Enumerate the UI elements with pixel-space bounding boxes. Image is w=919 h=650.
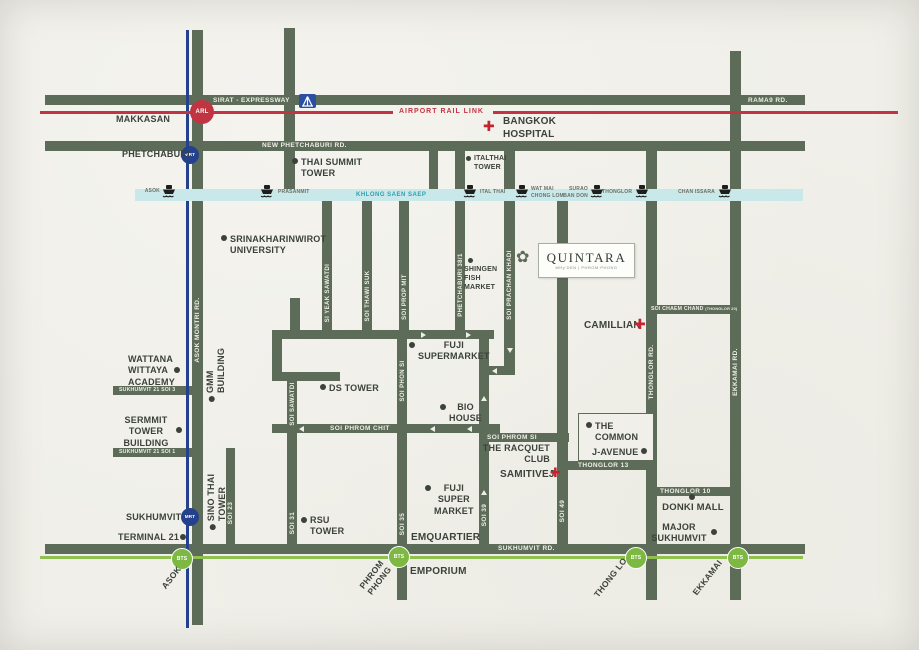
- poi-dot: [221, 235, 227, 241]
- road-sirat-expressway: [45, 95, 805, 105]
- mrt-line: [186, 30, 189, 628]
- road-label-phon-si: SOI PHON SI: [400, 360, 406, 401]
- poi-dot: [468, 258, 473, 263]
- poi-dot: [711, 529, 717, 535]
- road-label-sirat: SIRAT - EXPRESSWAY: [213, 98, 290, 105]
- one-way-arrow-north: [481, 396, 487, 401]
- camillian-label: CAMILLIAN: [584, 320, 641, 333]
- road-label-phrom-chit: SOI PHROM CHIT: [330, 426, 390, 433]
- srinakharinwirot-label: SRINAKHARINWIROT UNIVERSITY: [230, 234, 326, 257]
- poi-dot: [689, 494, 695, 500]
- poi-dot: [209, 396, 215, 402]
- road-label-thawi-suk: SOI THAWI SUK: [365, 271, 371, 322]
- road-label-si-yeak-sawatdi: SI YEAK SAWATDI: [325, 264, 331, 322]
- makkasan-label: MAKKASAN: [116, 114, 170, 125]
- poi-dot: [425, 485, 431, 491]
- bts-line: [40, 556, 803, 559]
- road-label-thonglor-rd: THONGLOR RD.: [649, 345, 656, 400]
- pier-label-wat-mai-chong-lom: WAT MAI CHONG LOM: [531, 186, 564, 199]
- road-label-prachan-khadi: SOI PRACHAN KHADI: [507, 250, 513, 319]
- poi-dot: [210, 524, 216, 530]
- j-avenue-label: J-AVENUE: [592, 447, 638, 458]
- gmm-building-label: GMM BUILDING: [205, 348, 228, 393]
- poi-dot: [320, 384, 326, 390]
- poi-dot: [586, 422, 592, 428]
- one-way-arrow-east: [466, 332, 471, 338]
- one-way-arrow-west: [430, 426, 435, 432]
- road-label-prop-mit: SOI PROP MIT: [402, 274, 408, 320]
- road-label-chaem-chand: SOI CHAEM CHAND (THONGLOR 20): [651, 307, 737, 312]
- one-way-arrow-north: [481, 490, 487, 495]
- pier-boat-icon: [260, 185, 274, 198]
- road-stub-west: [272, 372, 340, 381]
- emporium-label: EMPORIUM: [410, 566, 467, 579]
- one-way-arrow-west: [492, 368, 497, 374]
- terminal21-label: TERMINAL 21: [118, 532, 179, 543]
- poi-dot: [301, 517, 307, 523]
- thai-summit-label: THAI SUMMIT TOWER: [301, 157, 362, 180]
- road-label-suk21-soi1: SUKHUMVIT 21 SOI 1: [119, 450, 175, 455]
- road-ekkamai: [730, 51, 741, 600]
- poi-dot: [180, 534, 186, 540]
- sino-thai-label: SINO THAI TOWER: [206, 474, 229, 521]
- arl-station-badge: ARL: [190, 100, 214, 124]
- gmm-building: GMM BUILDING: [205, 348, 228, 402]
- bts-thong-lo-label: THONG LO: [593, 556, 630, 599]
- road-label-sukhumvit: SUKHUMVIT RD.: [498, 546, 555, 553]
- pier-label-ital-thai: ITAL THAI: [480, 189, 506, 196]
- poi-dot: [292, 158, 298, 164]
- road-label-thonglor10: THONGLOR 10: [660, 489, 711, 496]
- the-common: THE COMMON: [586, 421, 638, 444]
- pier-boat-icon: [718, 185, 732, 198]
- road-label-chaem-chand-main: SOI CHAEM CHAND: [651, 306, 704, 312]
- j-avenue: J-AVENUE: [592, 447, 647, 458]
- the-common-box: THE COMMON J-AVENUE: [578, 413, 654, 461]
- bts-phrom-phong-badge: BTS: [388, 546, 410, 568]
- shingen-fish-market-label: SHINGEN FISH MARKET: [464, 266, 497, 292]
- road-label-thonglor13: THONGLOR 13: [578, 463, 629, 470]
- quintara-flower-icon: ✿: [516, 249, 529, 265]
- road-label-chaem-chand-sub: (THONGLOR 20): [705, 307, 737, 311]
- quintara-logo: QUINTARA: [547, 251, 627, 264]
- mrt-sukhumvit-label: SUKHUMVIT: [126, 512, 179, 523]
- road-label-phrom-si: SOI PHROM SI: [487, 435, 537, 442]
- one-way-arrow-south: [507, 348, 513, 353]
- arl-line-west: [40, 111, 393, 114]
- fuji-super-market: FUJI SUPER MARKET: [425, 483, 474, 517]
- srinakharinwirot-university: SRINAKHARINWIROT UNIVERSITY: [221, 234, 326, 257]
- road-sukhumvit: [45, 544, 805, 554]
- road-label-suk21-soi3: SUKHUMVIT 21 SOI 3: [119, 388, 175, 393]
- road-label-rama9: RAMA9 RD.: [748, 98, 788, 105]
- one-way-arrow-east: [421, 332, 426, 338]
- road-label-new-phetchaburi: NEW PHETCHABURI RD.: [262, 143, 347, 150]
- thai-summit-tower: THAI SUMMIT TOWER: [292, 157, 362, 180]
- road-label-asok-montri: ASOK MONTRI RD.: [195, 297, 202, 362]
- samitivej-cross-icon: ✚: [550, 467, 561, 480]
- pier-label-chan-issara: CHAN ISSARA: [678, 189, 715, 196]
- ds-tower-label: DS TOWER: [329, 383, 379, 394]
- pier-label-prasanmit: PRASANMIT: [278, 189, 310, 196]
- pier-boat-icon: [635, 185, 649, 198]
- poi-dot: [440, 404, 446, 410]
- one-way-arrow-west: [467, 426, 472, 432]
- road-label-soi23: SOI 23: [228, 502, 235, 525]
- bangkok-hospital-label: BANGKOK HOSPITAL: [503, 116, 556, 141]
- bio-house: BIO HOUSE: [440, 402, 482, 425]
- pier-label-asok: ASOK: [139, 188, 160, 195]
- ds-tower: DS TOWER: [320, 383, 379, 394]
- rsu-tower: RSU TOWER: [301, 515, 344, 538]
- pier-label-thonglor: THONGLOR: [602, 189, 632, 196]
- expressway-icon: [299, 94, 316, 108]
- pier-label-surao-ban-don: SURAO BAN DON: [561, 186, 588, 199]
- sermmit-tower-label: SERMMIT TOWER BUILDING: [122, 415, 170, 449]
- poi-dot: [176, 427, 182, 433]
- donki-mall-label: DONKI MALL: [660, 502, 726, 514]
- location-map: KHLONG SAEN SAEP ASOK PRASANMIT ITAL THA…: [0, 0, 919, 650]
- poi-dot: [641, 448, 647, 454]
- rsu-tower-label: RSU TOWER: [310, 515, 344, 538]
- quintara-tagline: MHy’DEN | PHROM PHONG: [556, 266, 618, 270]
- pier-boat-icon: [515, 185, 529, 198]
- road-label-phetchaburi-38-1: PHETCHABURI 38/1: [458, 253, 464, 316]
- bts-thong-lo-badge: BTS: [625, 547, 647, 569]
- italthai-tower: ITALTHAI TOWER: [466, 155, 506, 173]
- the-common-label: THE COMMON: [595, 421, 638, 444]
- sino-thai-tower: SINO THAI TOWER: [206, 474, 229, 530]
- bts-ekkamai-badge: BTS: [727, 547, 749, 569]
- road-label-ekkamai-rd: EKKAMAI RD.: [733, 348, 740, 396]
- emquartier-label: EMQUARTIER: [411, 532, 480, 545]
- samitivej-label: SAMITIVEJ: [500, 469, 555, 482]
- wattana-academy-label: WATTANA WITTAYA ACADEMY: [128, 354, 175, 388]
- road-label-soi31: SOI 31: [289, 512, 296, 535]
- poi-dot: [409, 342, 415, 348]
- italthai-label: ITALTHAI TOWER: [474, 155, 506, 173]
- arl-line-east: [493, 111, 898, 114]
- fuji-supermarket: FUJI SUPERMARKET: [409, 340, 490, 363]
- road-label-soi35: SOI 35: [399, 513, 406, 536]
- major-sukhumvit-label: MAJOR SUKHUMVIT: [650, 522, 708, 545]
- canal-name: KHLONG SAEN SAEP: [356, 192, 426, 200]
- bangkok-hospital-cross-icon: ✚: [483, 120, 495, 134]
- poi-dot: [174, 367, 180, 373]
- bts-phrom-phong-label: PHROM PHONG: [358, 559, 394, 597]
- road-label-soi49: SOI 49: [560, 500, 567, 523]
- pier-boat-icon: [162, 185, 176, 198]
- bio-house-label: BIO HOUSE: [449, 402, 482, 425]
- racquet-club-label: THE RACQUET CLUB: [480, 443, 550, 466]
- road-label-sawatdi: SOI SAWATDI: [290, 382, 296, 425]
- mrt-phetchaburi-label: PHETCHABURI: [122, 149, 179, 160]
- quintara-logo-box: QUINTARA MHy’DEN | PHROM PHONG: [538, 243, 635, 278]
- road-dead-end-stub: [290, 298, 300, 334]
- poi-dot: [466, 156, 471, 161]
- camillian-cross-icon: ✚: [634, 318, 646, 332]
- road-west-connector: [272, 330, 282, 381]
- arl-line-label: AIRPORT RAIL LINK: [399, 108, 484, 115]
- fuji-supermarket-label: FUJI SUPERMARKET: [418, 340, 490, 363]
- one-way-arrow-west: [299, 426, 304, 432]
- mrt-sukhumvit-badge: MRT: [181, 508, 199, 526]
- pier-boat-icon: [463, 185, 477, 198]
- fuji-super-market-label: FUJI SUPER MARKET: [434, 483, 474, 517]
- road-label-soi39: SOI 39: [481, 504, 488, 527]
- bts-ekkamai-label: EKKAMAI: [691, 559, 724, 598]
- bts-asok-label: ASOK: [160, 565, 184, 591]
